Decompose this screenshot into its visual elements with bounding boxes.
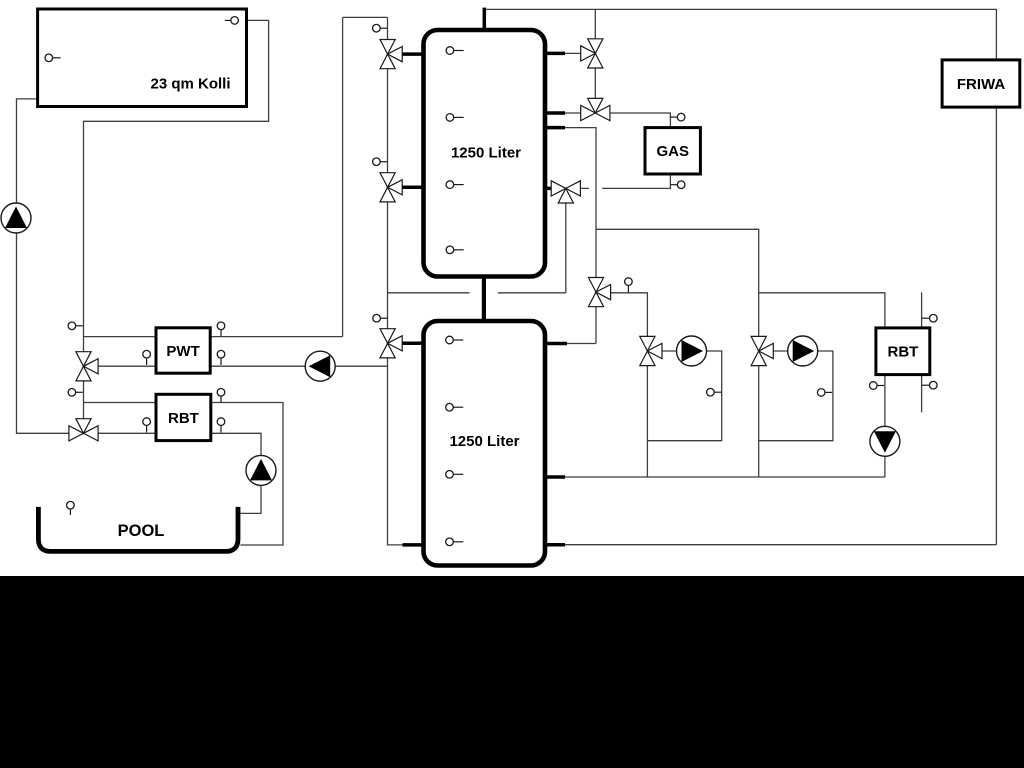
svg-text:RBT: RBT (168, 410, 199, 427)
svg-text:RBT: RBT (887, 344, 918, 361)
svg-text:1250 Liter: 1250 Liter (451, 144, 521, 161)
svg-text:1250 Liter: 1250 Liter (449, 433, 519, 450)
svg-text:POOL: POOL (118, 522, 165, 540)
svg-text:23 qm Kolli: 23 qm Kolli (150, 76, 230, 93)
svg-text:PWT: PWT (166, 343, 199, 360)
svg-text:FRIWA: FRIWA (957, 76, 1005, 93)
svg-text:GAS: GAS (656, 143, 689, 160)
